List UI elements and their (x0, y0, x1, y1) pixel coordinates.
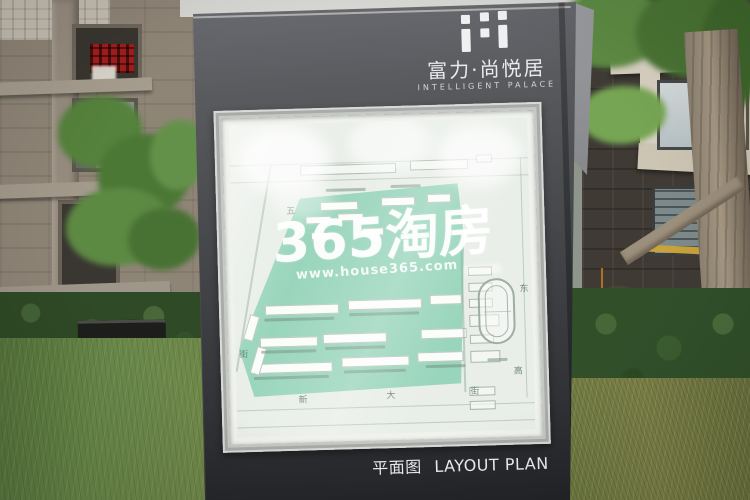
street-label-right-bottom: 高 (514, 367, 523, 376)
street-label-bottom-1: 新 (298, 396, 307, 405)
sign-top-cap (189, 6, 571, 19)
sign-content: 富力·尚悦居 INTELLIGENT PALACE (182, 0, 608, 500)
caption: 平面图 LAYOUT PLAN (295, 448, 626, 481)
street-label-bottom-2: 大 (386, 392, 395, 401)
sign-left-edge-highlight (190, 22, 206, 500)
signboard: 富力·尚悦居 INTELLIGENT PALACE (188, 0, 600, 500)
caption-en: LAYOUT PLAN (434, 454, 549, 476)
building-block (430, 294, 462, 305)
street-label-bottom-3: 街 (470, 388, 479, 397)
watermark-small-text-smudge (465, 263, 502, 275)
map-mat: 五 街 新 大 街 东 高 365淘房 www.house365.com (222, 110, 543, 445)
building-block (421, 328, 467, 339)
building-block (265, 304, 339, 316)
building-block (323, 332, 387, 344)
road-line (520, 157, 528, 397)
sign-front-face: 富力·尚悦居 INTELLIGENT PALACE (188, 0, 600, 500)
lawn-left (0, 338, 218, 500)
school-track (477, 278, 516, 345)
street-label-right-top: 东 (519, 285, 528, 294)
brand-logo-icon (182, 0, 594, 6)
site-map: 五 街 新 大 街 东 高 365淘房 www.house365.com (229, 117, 536, 437)
building-block (341, 356, 409, 368)
building-outline (470, 400, 496, 410)
road-line (237, 419, 535, 428)
map-frame: 五 街 新 大 街 东 高 365淘房 www.house365.com (213, 102, 550, 453)
map-text-mark (487, 358, 507, 362)
building-block (417, 351, 463, 362)
watermark-brand: 365淘房 (260, 202, 506, 274)
street-label-left-bottom: 街 (239, 351, 248, 360)
glass-reflection (437, 123, 523, 187)
building-block (348, 298, 422, 310)
map-text-mark (326, 188, 366, 192)
caption-zh: 平面图 (372, 457, 422, 477)
photo-scene: 富力·尚悦居 INTELLIGENT PALACE (0, 0, 750, 500)
building-block (260, 336, 318, 348)
